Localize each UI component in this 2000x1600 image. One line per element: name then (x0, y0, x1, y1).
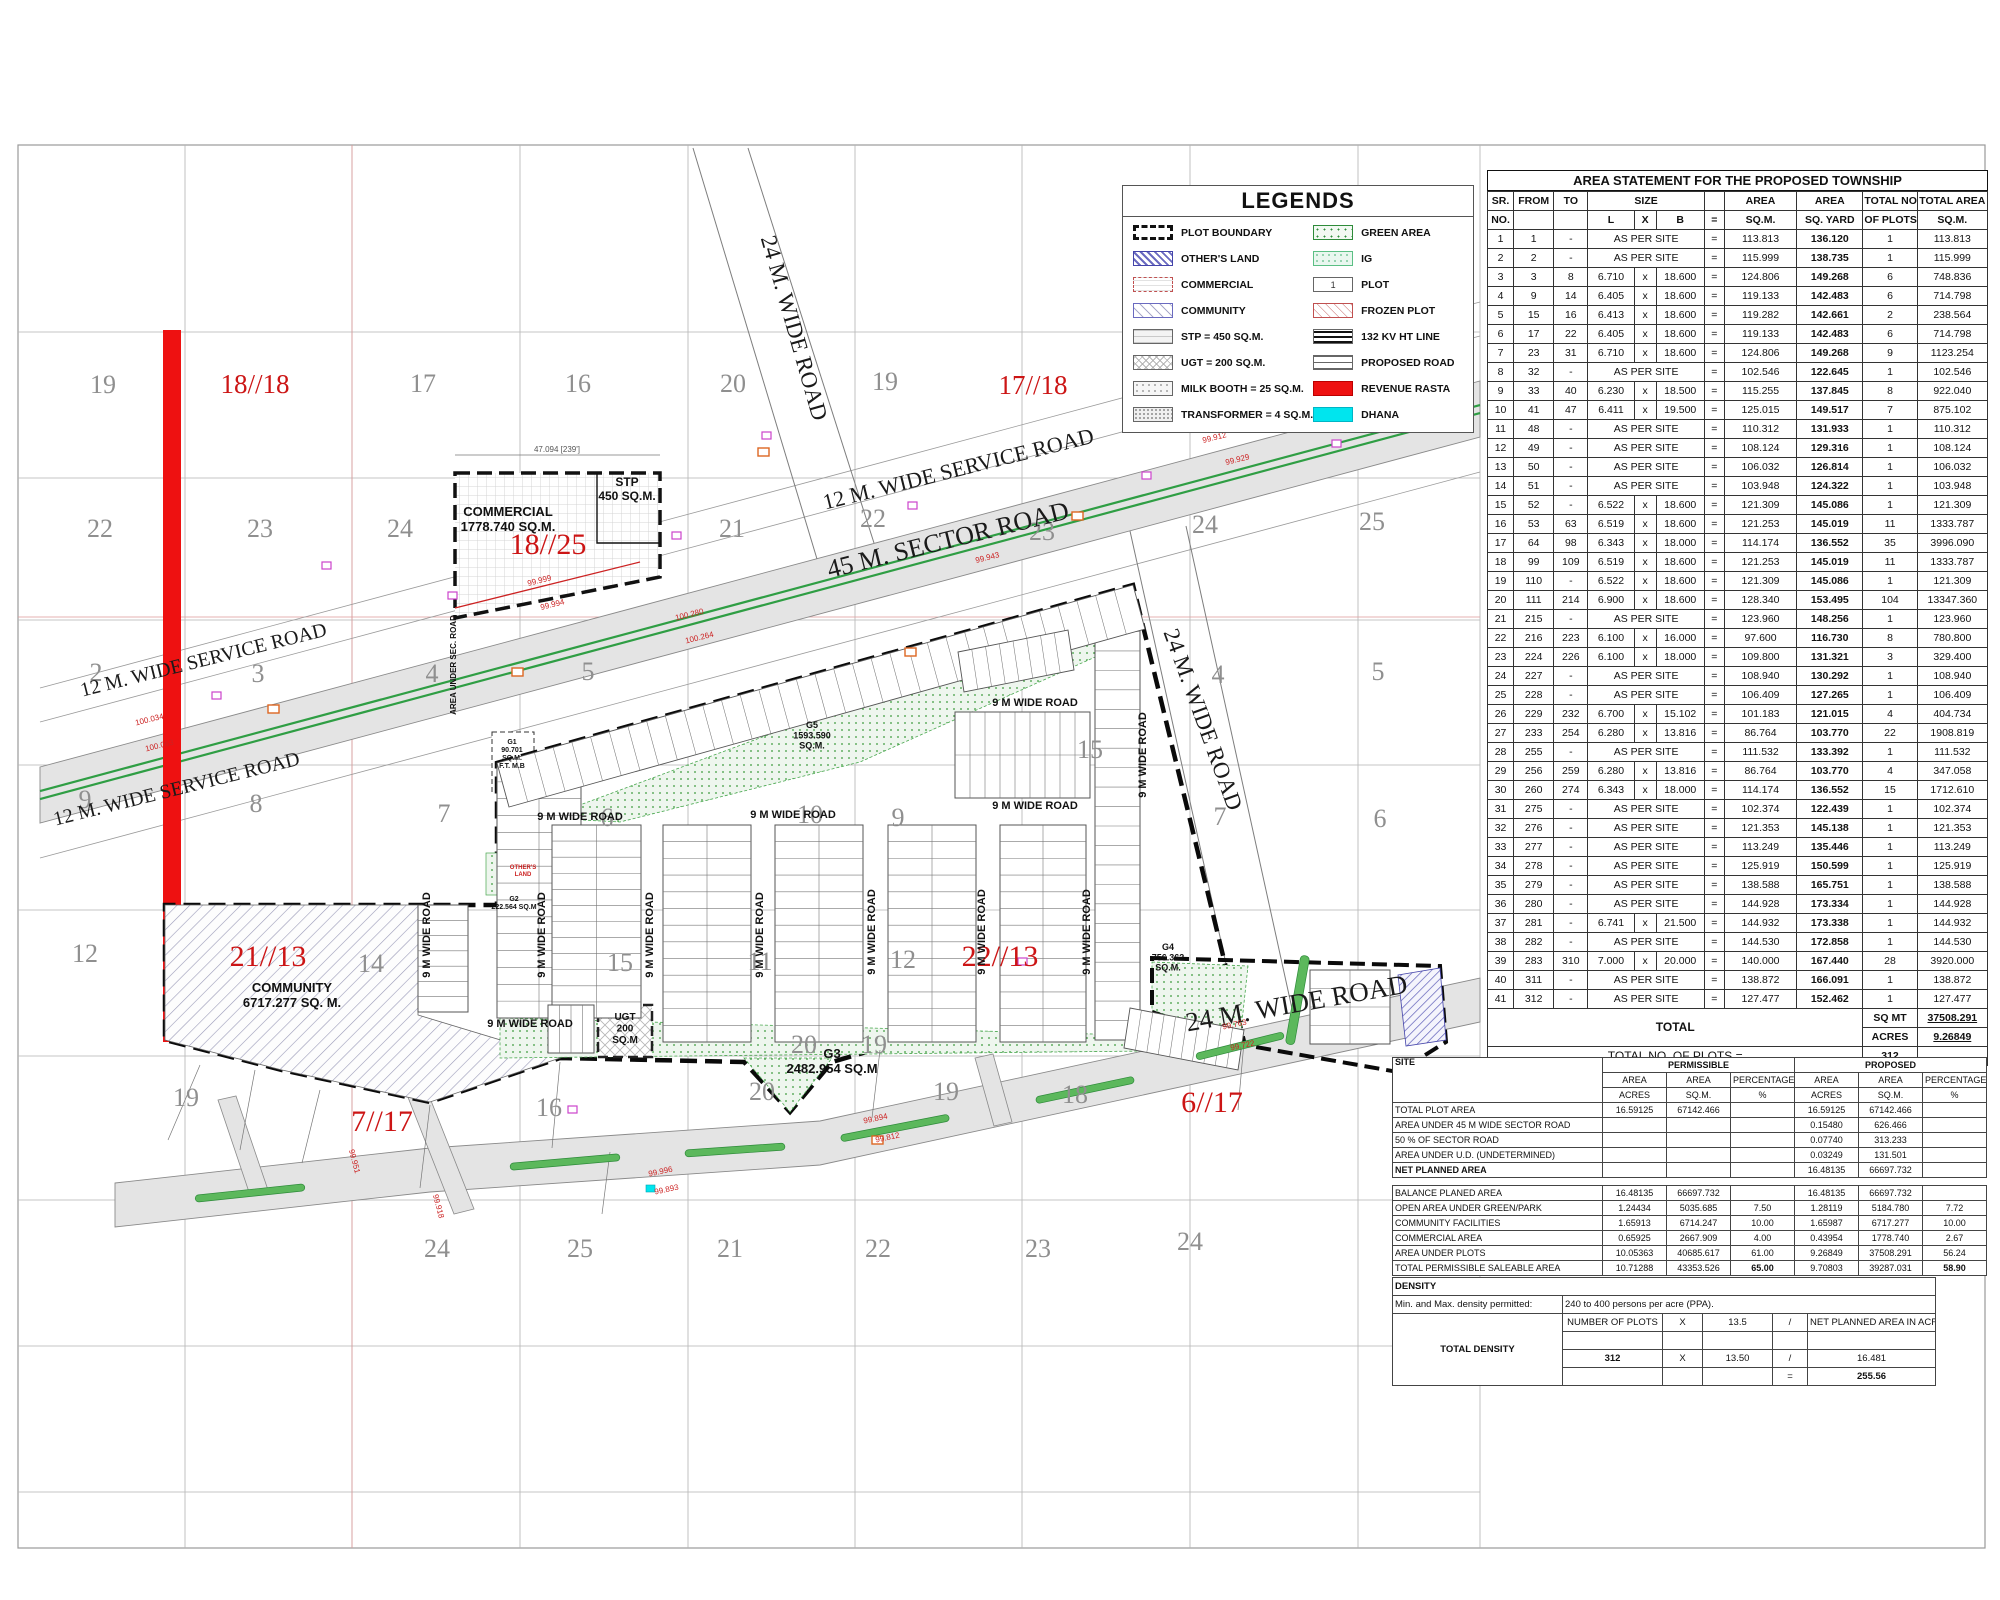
row-label: NET PLANNED AREA (1393, 1163, 1603, 1178)
cell-plots: 1 (1863, 990, 1917, 1009)
legend-item-label: COMMUNITY (1181, 305, 1246, 317)
cell-sqm: 121.309 (1724, 572, 1796, 591)
cell-sqyd: 136.552 (1797, 781, 1863, 800)
cell: NET PLANNED AREA IN ACRES (1808, 1314, 1936, 1332)
cell: 215 (1514, 610, 1554, 629)
cell-sqyd: 172.858 (1797, 933, 1863, 952)
cell-plots: 1 (1863, 420, 1917, 439)
header-cell: B (1656, 211, 1704, 230)
cell-x: x (1634, 496, 1656, 515)
grid-number: 12 (72, 939, 98, 968)
density-row: TOTAL DENSITYNUMBER OF PLOTSX13.5/NET PL… (1393, 1314, 1936, 1332)
cell-total: 108.940 (1917, 667, 1987, 686)
cell: 5184.780 (1859, 1201, 1923, 1216)
minor-road-label: 9 M WIDE ROAD (976, 889, 988, 975)
cell-as-per-site: AS PER SITE (1588, 895, 1704, 914)
cell-sqyd: 145.086 (1797, 496, 1863, 515)
cell-total: 3996.090 (1917, 534, 1987, 553)
cell-eq: = (1704, 420, 1724, 439)
cell: 0.15480 (1795, 1118, 1859, 1133)
cell: 22 (1554, 325, 1588, 344)
cell: 1.24434 (1603, 1201, 1667, 1216)
cell-sqm: 111.532 (1724, 743, 1796, 762)
minor-road-label: 9 M WIDE ROAD (992, 697, 1078, 709)
cell-sqyd: 166.091 (1797, 971, 1863, 990)
parcel-number-label: 22//13 (962, 940, 1039, 973)
cell: 260 (1514, 781, 1554, 800)
cell-total: 347.058 (1917, 762, 1987, 781)
cell-plots: 1 (1863, 572, 1917, 591)
cell: 18 (1488, 553, 1514, 572)
cell: 278 (1514, 857, 1554, 876)
cell-l: 6.900 (1588, 591, 1634, 610)
cell: 32 (1488, 819, 1514, 838)
cell: - (1554, 743, 1588, 762)
dimension-label: 99.918 (431, 1193, 446, 1219)
table-row: 1764986.343x18.000=114.174136.552353996.… (1488, 534, 1988, 553)
table-row: 1148-AS PER SITE=110.312131.9331110.312 (1488, 420, 1988, 439)
cell: - (1554, 420, 1588, 439)
cell-eq: = (1704, 933, 1724, 952)
cell-plots: 7 (1863, 401, 1917, 420)
cell: 35 (1488, 876, 1514, 895)
cell: 31 (1554, 344, 1588, 363)
cell-sqm: 121.353 (1724, 819, 1796, 838)
header-cell: TOTAL AREA (1917, 192, 1987, 211)
cell: 311 (1514, 971, 1554, 990)
cell-l: 6.280 (1588, 724, 1634, 743)
header-cell: L (1588, 211, 1634, 230)
cell-l: 6.230 (1588, 382, 1634, 401)
legend-item: PLOT BOUNDARY (1133, 223, 1313, 242)
cell: 8 (1554, 268, 1588, 287)
cell: 16.48135 (1795, 1163, 1859, 1178)
cell: 34 (1488, 857, 1514, 876)
cell (1603, 1163, 1667, 1178)
cell: 32 (1514, 363, 1554, 382)
cell: - (1554, 667, 1588, 686)
cell-eq: = (1704, 268, 1724, 287)
table-row: AREA UNDER 45 M WIDE SECTOR ROAD0.154806… (1393, 1118, 1987, 1133)
cell: - (1554, 610, 1588, 629)
cell: - (1554, 439, 1588, 458)
table-row: 302602746.343x18.000=114.174136.55215171… (1488, 781, 1988, 800)
legends-left-column: PLOT BOUNDARYOTHER'S LANDCOMMERCIALCOMMU… (1133, 223, 1313, 424)
subheader-cell: AREA (1859, 1073, 1923, 1088)
dimension-label: 99.893 (654, 1182, 680, 1196)
cell: 38 (1488, 933, 1514, 952)
cell-l: 6.100 (1588, 629, 1634, 648)
cell: - (1554, 477, 1588, 496)
cell: 0.03249 (1795, 1148, 1859, 1163)
cell: - (1554, 800, 1588, 819)
cell-as-per-site: AS PER SITE (1588, 363, 1704, 382)
cell-sqm: 86.764 (1724, 762, 1796, 781)
cell-eq: = (1704, 249, 1724, 268)
cell: - (1554, 819, 1588, 838)
cell-sqm: 144.932 (1724, 914, 1796, 933)
grid-number: 15 (1077, 735, 1103, 764)
transformer-marker (212, 692, 221, 699)
cell-eq: = (1704, 534, 1724, 553)
cell: - (1554, 895, 1588, 914)
cell-sqyd: 142.483 (1797, 287, 1863, 306)
cell: 13.5 (1703, 1314, 1773, 1332)
cell: 282 (1514, 933, 1554, 952)
table-row: OPEN AREA UNDER GREEN/PARK1.244345035.68… (1393, 1201, 1987, 1216)
cell-eq: = (1704, 648, 1724, 667)
legend-item: 1PLOT (1313, 275, 1467, 294)
grid-number: 25 (1359, 507, 1385, 536)
cell-sqyd: 103.770 (1797, 762, 1863, 781)
total-sqmt-label: SQ MT (1863, 1009, 1917, 1028)
cell: 16.481 (1808, 1350, 1936, 1368)
cell-eq: = (1704, 971, 1724, 990)
milk-booth-swatch (1133, 381, 1173, 396)
cell-eq: = (1704, 439, 1724, 458)
cell-sqyd: 173.338 (1797, 914, 1863, 933)
cell-b: 18.600 (1656, 306, 1704, 325)
cell: 99 (1514, 553, 1554, 572)
cell-b: 15.102 (1656, 705, 1704, 724)
cell: 63 (1554, 515, 1588, 534)
header-cell: FROM (1514, 192, 1554, 211)
cell-sqm: 124.806 (1724, 268, 1796, 287)
cell: = (1773, 1368, 1808, 1386)
cell: 4 (1488, 287, 1514, 306)
transformer-marker (908, 502, 917, 509)
cell: - (1554, 971, 1588, 990)
cell: 29 (1488, 762, 1514, 781)
cell: 280 (1514, 895, 1554, 914)
cell-total: 714.798 (1917, 287, 1987, 306)
cell: 26 (1488, 705, 1514, 724)
grid-number: 19 (173, 1083, 199, 1112)
cell-eq: = (1704, 667, 1724, 686)
subheader-cell: % (1731, 1088, 1795, 1103)
cell (1808, 1332, 1936, 1350)
cell (1667, 1133, 1731, 1148)
cell-l: 6.710 (1588, 344, 1634, 363)
cell-total: 111.532 (1917, 743, 1987, 762)
cell-sqm: 127.477 (1724, 990, 1796, 1009)
cell-x: x (1634, 724, 1656, 743)
cell: 1 (1488, 230, 1514, 249)
table-row: 201112146.900x18.600=128.340153.49510413… (1488, 591, 1988, 610)
cell: 40685.617 (1667, 1246, 1731, 1261)
cell: 41 (1514, 401, 1554, 420)
table-row: 22-AS PER SITE=115.999138.7351115.999 (1488, 249, 1988, 268)
cell (1731, 1163, 1795, 1178)
total-acres-value: 9.26849 (1917, 1028, 1987, 1047)
cell-sqyd: 145.019 (1797, 553, 1863, 572)
cell: 23 (1488, 648, 1514, 667)
cell: - (1554, 363, 1588, 382)
parcel-number-label: 17//18 (998, 370, 1067, 400)
cell-sqm: 121.309 (1724, 496, 1796, 515)
proposed-road-swatch (1313, 355, 1353, 370)
cell: 10.00 (1731, 1216, 1795, 1231)
cell: 31 (1488, 800, 1514, 819)
cell: 2667.909 (1667, 1231, 1731, 1246)
cell-l: 6.411 (1588, 401, 1634, 420)
cell (1667, 1163, 1731, 1178)
cell: 20 (1488, 591, 1514, 610)
plot-swatch: 1 (1313, 277, 1353, 292)
table-row: 1451-AS PER SITE=103.948124.3221103.948 (1488, 477, 1988, 496)
cell-b: 18.000 (1656, 648, 1704, 667)
legend-item: DHANA (1313, 405, 1467, 424)
subheader-cell: SQ.M. (1859, 1088, 1923, 1103)
cell: 17 (1514, 325, 1554, 344)
cell-x: x (1634, 648, 1656, 667)
subheader-cell: PERCENTAGE (1731, 1073, 1795, 1088)
cell-as-per-site: AS PER SITE (1588, 439, 1704, 458)
cell-sqm: 115.999 (1724, 249, 1796, 268)
cell-l: 7.000 (1588, 952, 1634, 971)
cell: 13 (1488, 458, 1514, 477)
table-row: 1350-AS PER SITE=106.032126.8141106.032 (1488, 458, 1988, 477)
cell-x: x (1634, 382, 1656, 401)
cell-eq: = (1704, 306, 1724, 325)
grid-number: 5 (582, 657, 595, 686)
cell-total: 113.249 (1917, 838, 1987, 857)
area-label: COMMERCIAL1778.740 SQ.M. (461, 504, 556, 534)
cell: 7.72 (1923, 1201, 1987, 1216)
cell: 0.43954 (1795, 1231, 1859, 1246)
table-row: COMMUNITY FACILITIES1.659136714.24710.00… (1393, 1216, 1987, 1231)
cell: 43353.526 (1667, 1261, 1731, 1276)
cell: 6714.247 (1667, 1216, 1731, 1231)
cell: 41 (1488, 990, 1514, 1009)
cell-x: x (1634, 914, 1656, 933)
cell-total: 748.836 (1917, 268, 1987, 287)
row-label: OPEN AREA UNDER GREEN/PARK (1393, 1201, 1603, 1216)
cell: 56.24 (1923, 1246, 1987, 1261)
cell-total: 3920.000 (1917, 952, 1987, 971)
spacer-cell (1393, 1178, 1987, 1186)
total-density-label: TOTAL DENSITY (1393, 1314, 1563, 1386)
cell-l: 6.519 (1588, 515, 1634, 534)
legend-item-label: PROPOSED ROAD (1361, 357, 1454, 369)
cell-plots: 8 (1863, 629, 1917, 648)
cell: 9 (1514, 287, 1554, 306)
cell-eq: = (1704, 458, 1724, 477)
cell: 310 (1554, 952, 1588, 971)
legends-body: PLOT BOUNDARYOTHER'S LANDCOMMERCIALCOMMU… (1123, 217, 1473, 432)
table-row: 262292326.700x15.102=101.183121.0154404.… (1488, 705, 1988, 724)
cell: 229 (1514, 705, 1554, 724)
cell-sqm: 125.015 (1724, 401, 1796, 420)
cell-b: 18.600 (1656, 344, 1704, 363)
cell: - (1554, 572, 1588, 591)
cell-sqyd: 138.735 (1797, 249, 1863, 268)
header-cell: = (1704, 211, 1724, 230)
cell-sqyd: 142.483 (1797, 325, 1863, 344)
cell-plots: 4 (1863, 762, 1917, 781)
cell: 66697.732 (1859, 1163, 1923, 1178)
legend-item: 132 KV HT LINE (1313, 327, 1467, 346)
cell: 66697.732 (1667, 1186, 1731, 1201)
cell-sqyd: 121.015 (1797, 705, 1863, 724)
revenue-rasta-swatch (1313, 381, 1353, 396)
cell-sqm: 86.764 (1724, 724, 1796, 743)
cell (1731, 1148, 1795, 1163)
cell-plots: 1 (1863, 895, 1917, 914)
cell-total: 714.798 (1917, 325, 1987, 344)
header-cell (1514, 211, 1554, 230)
grid-number: 22 (87, 514, 113, 543)
cell: 39287.031 (1859, 1261, 1923, 1276)
others-land-swatch (1133, 251, 1173, 266)
header-row: SITEPERMISSIBLEPROPOSED (1393, 1058, 1987, 1073)
cell: 16 (1488, 515, 1514, 534)
row-label: COMMERCIAL AREA (1393, 1231, 1603, 1246)
cell: 1.28119 (1795, 1201, 1859, 1216)
cell: 131.501 (1859, 1148, 1923, 1163)
area-label: G4756.362SQ.M. (1152, 942, 1185, 973)
cell: 52 (1514, 496, 1554, 515)
dhana-swatch (1313, 407, 1353, 422)
dimension-label: 100.034 (134, 712, 165, 728)
header-cell: AREA (1797, 192, 1863, 211)
cell-b: 13.816 (1656, 724, 1704, 743)
title-row: DENSITY (1393, 1278, 1936, 1296)
table-row: 392833107.000x20.000=140.000167.44028392… (1488, 952, 1988, 971)
cell-plots: 1 (1863, 743, 1917, 762)
transformer-marker (448, 592, 457, 599)
cell: 214 (1554, 591, 1588, 610)
cell-b: 18.000 (1656, 534, 1704, 553)
cell: 27 (1488, 724, 1514, 743)
cell-plots: 1 (1863, 876, 1917, 895)
cell: - (1554, 496, 1588, 515)
table-row: AREA UNDER U.D. (UNDETERMINED)0.03249131… (1393, 1148, 1987, 1163)
cell-b: 18.500 (1656, 382, 1704, 401)
total-label: TOTAL (1488, 1009, 1863, 1047)
cell-plots: 28 (1863, 952, 1917, 971)
transformer-marker (1332, 440, 1341, 447)
grid-number: 16 (565, 369, 591, 398)
cell: 13.50 (1703, 1350, 1773, 1368)
cell-plots: 15 (1863, 781, 1917, 800)
cell: 5 (1488, 306, 1514, 325)
cell: 10 (1488, 401, 1514, 420)
cell-l: 6.343 (1588, 781, 1634, 800)
grid-number: 17 (410, 369, 436, 398)
cell: 49 (1514, 439, 1554, 458)
cell: 1.65987 (1795, 1216, 1859, 1231)
header-cell: TO (1554, 192, 1588, 211)
cell: 21 (1488, 610, 1514, 629)
cell: 58.90 (1923, 1261, 1987, 1276)
permitted-value: 240 to 400 persons per acre (PPA). (1563, 1296, 1936, 1314)
cell-sqm: 119.282 (1724, 306, 1796, 325)
cell-x: x (1634, 705, 1656, 724)
cell: 312 (1514, 990, 1554, 1009)
cell-total: 123.960 (1917, 610, 1987, 629)
minor-road-label: 9 M WIDE ROAD (644, 892, 656, 978)
cell-plots: 4 (1863, 705, 1917, 724)
row-label: AREA UNDER 45 M WIDE SECTOR ROAD (1393, 1118, 1603, 1133)
cell-as-per-site: AS PER SITE (1588, 800, 1704, 819)
cell-eq: = (1704, 401, 1724, 420)
table-row: 40311-AS PER SITE=138.872166.0911138.872 (1488, 971, 1988, 990)
cell: 626.466 (1859, 1118, 1923, 1133)
stp-swatch (1133, 329, 1173, 344)
cell-as-per-site: AS PER SITE (1588, 743, 1704, 762)
cell: 39 (1488, 952, 1514, 971)
header-row: SR.FROMTOSIZEAREAAREATOTAL NO.TOTAL AREA (1488, 192, 1988, 211)
cell-eq: = (1704, 914, 1724, 933)
cell: 276 (1514, 819, 1554, 838)
legend-item: UGT = 200 SQ.M. (1133, 353, 1313, 372)
cell: 256 (1514, 762, 1554, 781)
cell-eq: = (1704, 382, 1724, 401)
cell-x: x (1634, 572, 1656, 591)
table-row: 41312-AS PER SITE=127.477152.4621127.477 (1488, 990, 1988, 1009)
grid-number: 3 (252, 659, 265, 688)
township-drawing-sheet: 1917162019222324212223242523459876109457… (0, 0, 2000, 1600)
cell-plots: 1 (1863, 819, 1917, 838)
cell-plots: 1 (1863, 914, 1917, 933)
row-label: TOTAL PLOT AREA (1393, 1103, 1603, 1118)
cell-b: 19.500 (1656, 401, 1704, 420)
cell: 109 (1554, 553, 1588, 572)
header-cell: SQ. YARD (1797, 211, 1863, 230)
cell-l: 6.522 (1588, 496, 1634, 515)
table-row: 1653636.519x18.600=121.253145.019111333.… (1488, 515, 1988, 534)
cell: 25 (1488, 686, 1514, 705)
community-swatch (1133, 303, 1173, 318)
cell-sqm: 109.800 (1724, 648, 1796, 667)
cell-sqm: 114.174 (1724, 534, 1796, 553)
cell-eq: = (1704, 629, 1724, 648)
cell-total: 102.374 (1917, 800, 1987, 819)
transformer-marker (322, 562, 331, 569)
cell-total: 1908.819 (1917, 724, 1987, 743)
grid-number: 14 (358, 949, 384, 978)
grid-number: 19 (872, 367, 898, 396)
cell (1603, 1118, 1667, 1133)
cell (1731, 1103, 1795, 1118)
grid-number: 25 (567, 1234, 593, 1263)
cell: 8 (1488, 363, 1514, 382)
cell (1923, 1103, 1987, 1118)
cell-as-per-site: AS PER SITE (1588, 876, 1704, 895)
cell: 30 (1488, 781, 1514, 800)
cell-sqm: 119.133 (1724, 325, 1796, 344)
grid-number: 9 (892, 803, 905, 832)
legend-item-label: IG (1361, 253, 1372, 265)
cell-plots: 1 (1863, 610, 1917, 629)
cell-sqm: 103.948 (1724, 477, 1796, 496)
cell-sqyd: 149.517 (1797, 401, 1863, 420)
cell: 51 (1514, 477, 1554, 496)
area-statement-panel: AREA STATEMENT FOR THE PROPOSED TOWNSHIP… (1487, 170, 1988, 1066)
cell: 313.233 (1859, 1133, 1923, 1148)
cell: 254 (1554, 724, 1588, 743)
cell: 23 (1514, 344, 1554, 363)
cell: - (1554, 914, 1588, 933)
cell: 15 (1514, 306, 1554, 325)
transformer-swatch (1133, 407, 1173, 422)
cell: 24 (1488, 667, 1514, 686)
cell-sqyd: 122.645 (1797, 363, 1863, 382)
cell-l: 6.405 (1588, 325, 1634, 344)
legend-item-label: STP = 450 SQ.M. (1181, 331, 1263, 343)
cell: - (1554, 933, 1588, 952)
